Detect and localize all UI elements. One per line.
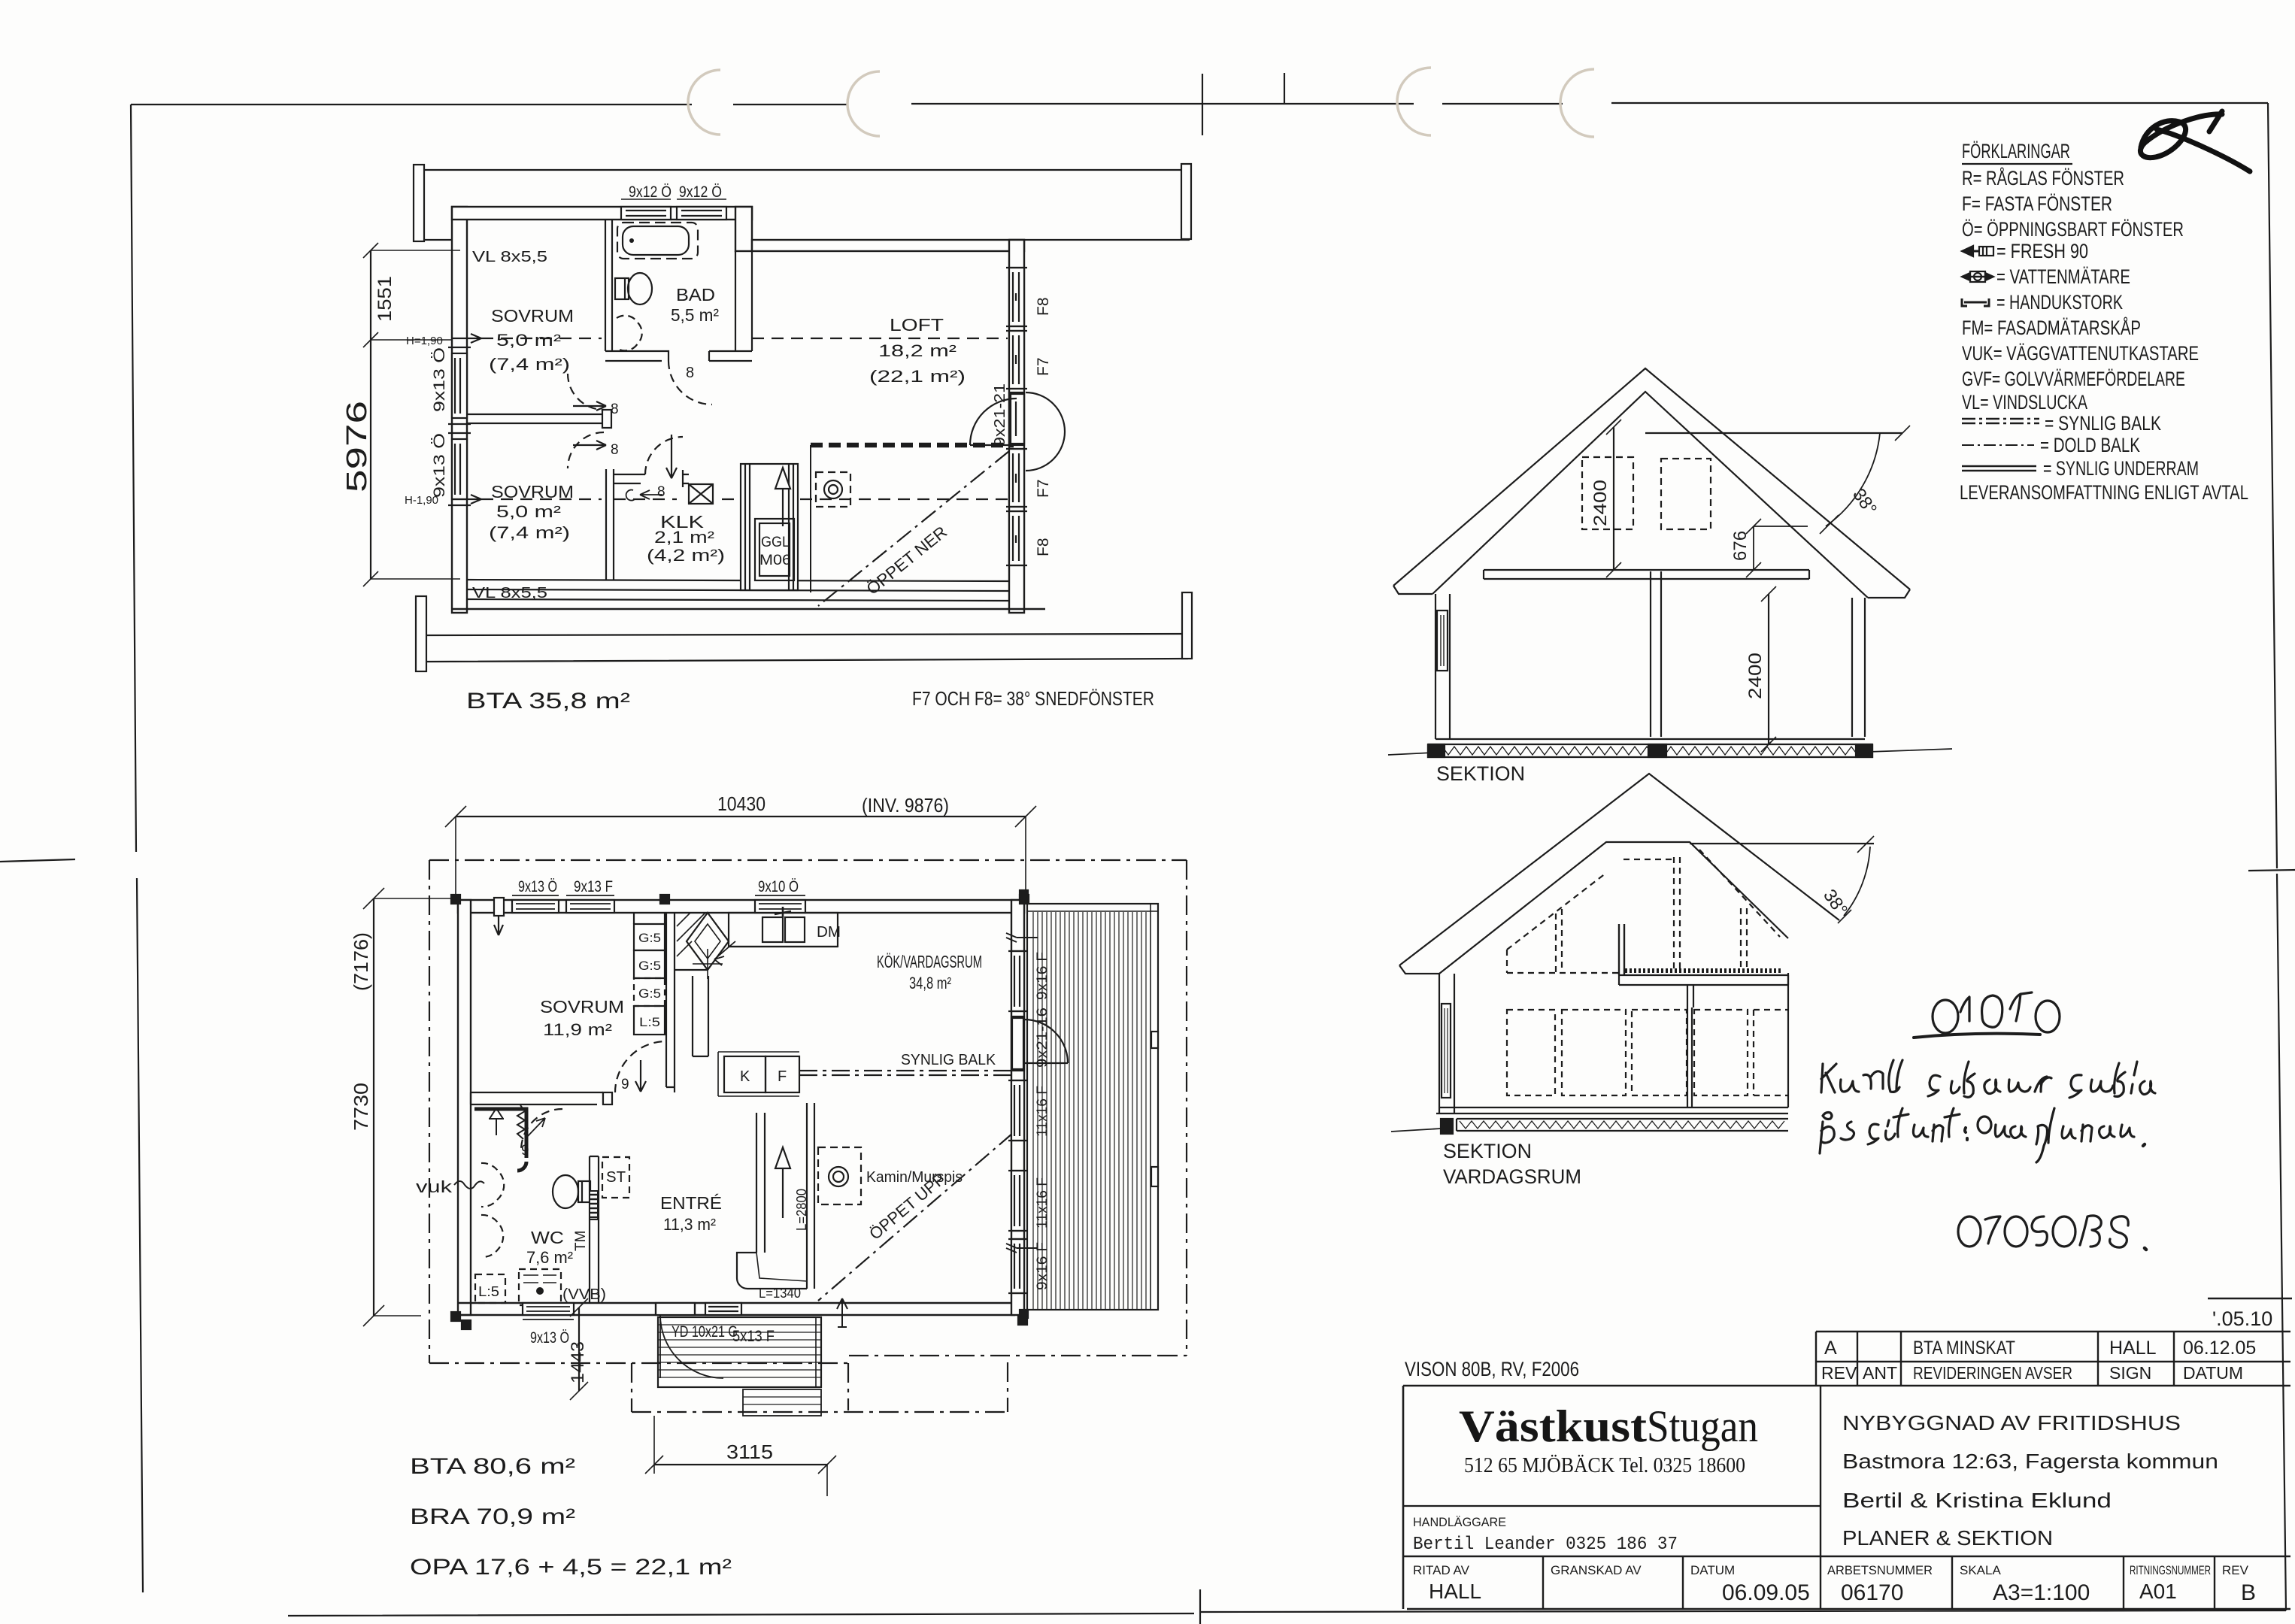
svg-text:SEKTION: SEKTION [1443, 1140, 1532, 1162]
svg-text:'.05.10: '.05.10 [2212, 1307, 2272, 1330]
svg-text:RITAD AV: RITAD AV [1413, 1563, 1470, 1577]
svg-text:L:5: L:5 [639, 1015, 660, 1029]
svg-text:GVF= GOLVVÄRMEFÖRDELARE: GVF= GOLVVÄRMEFÖRDELARE [1962, 368, 2185, 390]
svg-text:VL 8x5,5: VL 8x5,5 [472, 585, 547, 601]
svg-text:5,0 m²: 5,0 m² [496, 502, 561, 521]
svg-text:06170: 06170 [1841, 1580, 1903, 1605]
svg-text:LOFT: LOFT [890, 315, 944, 335]
svg-text:PLANER & SEKTION: PLANER & SEKTION [1842, 1526, 2053, 1550]
svg-text:REVIDERINGEN AVSER: REVIDERINGEN AVSER [1913, 1363, 2072, 1383]
svg-text:A3=1:100: A3=1:100 [1993, 1580, 2090, 1605]
svg-text:NYBYGGNAD AV FRITIDSHUS: NYBYGGNAD AV FRITIDSHUS [1842, 1411, 2181, 1435]
svg-text:F8: F8 [1035, 297, 1052, 316]
svg-text:9x13 Ö: 9x13 Ö [518, 878, 557, 895]
svg-text:TM: TM [573, 1231, 589, 1251]
svg-text:VUK= VÄGGVATTENUTKASTARE: VUK= VÄGGVATTENUTKASTARE [1962, 342, 2199, 365]
svg-text:GGL: GGL [761, 535, 790, 550]
svg-text:ST: ST [606, 1169, 626, 1186]
svg-text:SOVRUM: SOVRUM [540, 997, 624, 1017]
svg-text:= SYNLIG UNDERRAM: = SYNLIG UNDERRAM [2043, 457, 2199, 480]
svg-text:8: 8 [611, 442, 619, 458]
svg-text:B: B [2241, 1580, 2256, 1605]
svg-text:18,2 m²: 18,2 m² [878, 341, 957, 360]
svg-text:HANDLÄGGARE: HANDLÄGGARE [1413, 1515, 1506, 1529]
svg-text:DATUM: DATUM [1690, 1563, 1735, 1577]
svg-text:L:5: L:5 [478, 1284, 499, 1299]
svg-text:9x12 Ö 9x12 Ö: 9x12 Ö 9x12 Ö [629, 183, 722, 201]
svg-text:2,1 m²: 2,1 m² [654, 528, 714, 547]
svg-text:8: 8 [657, 484, 665, 500]
svg-text:DM: DM [817, 924, 841, 941]
svg-text:Bertil Leander 0325 186 37: Bertil Leander 0325 186 37 [1413, 1535, 1678, 1555]
svg-text:2400: 2400 [1745, 653, 1766, 699]
svg-text:BTA 80,6 m²: BTA 80,6 m² [410, 1454, 575, 1479]
svg-text:FM= FASADMÄTARSKÅP: FM= FASADMÄTARSKÅP [1962, 316, 2141, 339]
svg-text:8: 8 [611, 401, 619, 417]
svg-text:9x13 Ö: 9x13 Ö [431, 347, 448, 412]
svg-text:M06: M06 [759, 553, 791, 568]
svg-text:676: 676 [1730, 531, 1751, 561]
svg-text:VL 8x5,5: VL 8x5,5 [472, 249, 547, 265]
svg-text:9x10 Ö: 9x10 Ö [758, 878, 799, 895]
svg-text:Ö= ÖPPNINGSBART FÖNSTER: Ö= ÖPPNINGSBART FÖNSTER [1962, 218, 2184, 241]
svg-text:SEKTION: SEKTION [1436, 762, 1525, 785]
svg-text:BTA MINSKAT: BTA MINSKAT [1913, 1338, 2015, 1359]
svg-text:VARDAGSRUM: VARDAGSRUM [1443, 1165, 1581, 1188]
svg-text:H=1,90: H=1,90 [406, 335, 443, 347]
svg-text:BTA 35,8 m²: BTA 35,8 m² [466, 689, 630, 714]
svg-text:Bertil & Kristina Eklund: Bertil & Kristina Eklund [1842, 1489, 2112, 1512]
svg-text:5976: 5976 [341, 401, 373, 492]
svg-text:(22,1 m²): (22,1 m²) [869, 367, 966, 386]
svg-text:DATUM: DATUM [2183, 1363, 2243, 1383]
svg-text:3115: 3115 [726, 1441, 773, 1463]
svg-text:RITNINGSNUMMER: RITNINGSNUMMER [2130, 1563, 2211, 1577]
svg-text:ENTRÉ: ENTRÉ [660, 1193, 722, 1213]
svg-text:34,8 m²: 34,8 m² [909, 974, 951, 992]
svg-text:SIGN: SIGN [2109, 1363, 2151, 1383]
svg-text:F= FASTA FÖNSTER: F= FASTA FÖNSTER [1962, 192, 2112, 215]
svg-text:9x13 Ö: 9x13 Ö [530, 1329, 569, 1347]
svg-text:FÖRKLARINGAR: FÖRKLARINGAR [1962, 140, 2070, 162]
svg-text:HALL: HALL [1429, 1580, 1481, 1603]
svg-text:5,5 m²: 5,5 m² [671, 305, 719, 325]
svg-text:HALL: HALL [2109, 1338, 2157, 1359]
svg-text:11,3 m²: 11,3 m² [663, 1215, 716, 1234]
svg-text:(7176): (7176) [350, 932, 372, 991]
svg-text:512 65 MJÖBÄCK Tel. 0325 18600: 512 65 MJÖBÄCK Tel. 0325 18600 [1464, 1454, 1745, 1477]
svg-text:9x21-21: 9x21-21 [992, 383, 1008, 447]
svg-text:A: A [1824, 1338, 1837, 1359]
svg-text:LEVERANSOMFATTNING ENLIGT AVTA: LEVERANSOMFATTNING ENLIGT AVTAL [1960, 481, 2248, 504]
svg-text:(7,4 m²): (7,4 m²) [489, 355, 570, 374]
svg-text:H-1,90: H-1,90 [405, 494, 438, 507]
svg-text:9: 9 [521, 1143, 529, 1159]
svg-text:REV: REV [2222, 1563, 2249, 1577]
svg-text:G:5: G:5 [638, 986, 661, 1001]
svg-text:REV: REV [1821, 1363, 1857, 1383]
svg-text:9: 9 [621, 1077, 629, 1092]
svg-text:OPA 17,6 + 4,5 = 22,1 m²: OPA 17,6 + 4,5 = 22,1 m² [410, 1555, 732, 1580]
svg-text:L=1340: L=1340 [759, 1286, 801, 1301]
svg-text:F7: F7 [1035, 357, 1052, 376]
svg-text:R= RÅGLAS FÖNSTER: R= RÅGLAS FÖNSTER [1962, 166, 2124, 189]
svg-text:5x13 F: 5x13 F [732, 1328, 775, 1345]
svg-text:= DOLD BALK: = DOLD BALK [2040, 434, 2140, 456]
svg-text:Stugan: Stugan [1647, 1401, 1758, 1451]
svg-text:Bastmora 12:63, Fagersta kommu: Bastmora 12:63, Fagersta kommun [1842, 1450, 2218, 1473]
svg-text:= SYNLIG BALK: = SYNLIG BALK [2045, 412, 2161, 435]
svg-text:9x13 F: 9x13 F [574, 878, 613, 895]
svg-text:SOVRUM: SOVRUM [491, 306, 574, 326]
svg-text:KÖK/VARDAGSRUM: KÖK/VARDAGSRUM [877, 952, 982, 971]
svg-text:BRA 70,9 m²: BRA 70,9 m² [410, 1504, 575, 1529]
svg-text:5,0 m²: 5,0 m² [496, 331, 561, 350]
svg-text:GRANSKAD AV: GRANSKAD AV [1551, 1563, 1642, 1577]
svg-text:06.09.05: 06.09.05 [1722, 1580, 1810, 1605]
svg-text:2400: 2400 [1590, 480, 1611, 526]
svg-text:10430: 10430 [717, 792, 766, 815]
svg-text:ARBETSNUMMER: ARBETSNUMMER [1827, 1563, 1933, 1577]
svg-text:G:5: G:5 [638, 931, 661, 945]
svg-text:F8: F8 [1035, 538, 1052, 556]
svg-text:(VVB): (VVB) [562, 1286, 606, 1303]
svg-text:G:5: G:5 [638, 959, 661, 973]
svg-text:1443: 1443 [568, 1341, 588, 1383]
svg-text:VISON 80B, RV, F2006: VISON 80B, RV, F2006 [1405, 1358, 1579, 1380]
svg-text:K: K [740, 1068, 750, 1085]
svg-text:BAD: BAD [676, 285, 715, 304]
svg-text:(INV. 9876): (INV. 9876) [862, 794, 949, 817]
svg-text:VL= VINDSLUCKA: VL= VINDSLUCKA [1962, 391, 2087, 414]
svg-text:9x13 Ö: 9x13 Ö [431, 433, 448, 498]
svg-text:06.12.05: 06.12.05 [2183, 1338, 2256, 1359]
svg-text:SKALA: SKALA [1960, 1563, 2001, 1577]
svg-text:= FRESH 90: = FRESH 90 [1996, 240, 2088, 262]
svg-text:= HANDUKSTORK: = HANDUKSTORK [1996, 291, 2123, 314]
svg-text:8: 8 [686, 365, 694, 381]
svg-text:WC: WC [531, 1228, 564, 1247]
svg-text:F7: F7 [1035, 479, 1052, 498]
svg-text:ANT: ANT [1863, 1363, 1897, 1383]
svg-text:7,6 m²: 7,6 m² [526, 1248, 573, 1267]
svg-text:SYNLIG BALK: SYNLIG BALK [901, 1052, 996, 1068]
svg-text:1551: 1551 [374, 276, 396, 322]
svg-text:vuk: vuk [416, 1177, 453, 1196]
svg-text:11,9 m²: 11,9 m² [543, 1020, 612, 1039]
svg-text:(7,4 m²): (7,4 m²) [489, 523, 570, 542]
svg-text:7730: 7730 [350, 1083, 372, 1131]
svg-text:= VATTENMÄTARE: = VATTENMÄTARE [1996, 265, 2130, 288]
svg-text:(4,2 m²): (4,2 m²) [647, 546, 725, 565]
svg-text:L=2800: L=2800 [794, 1189, 809, 1231]
svg-text:F: F [778, 1068, 787, 1085]
svg-text:F7 OCH F8= 38° SNEDFÖNSTER: F7 OCH F8= 38° SNEDFÖNSTER [912, 687, 1154, 710]
svg-text:A01: A01 [2139, 1580, 2177, 1603]
svg-text:Västkust: Västkust [1459, 1401, 1647, 1451]
